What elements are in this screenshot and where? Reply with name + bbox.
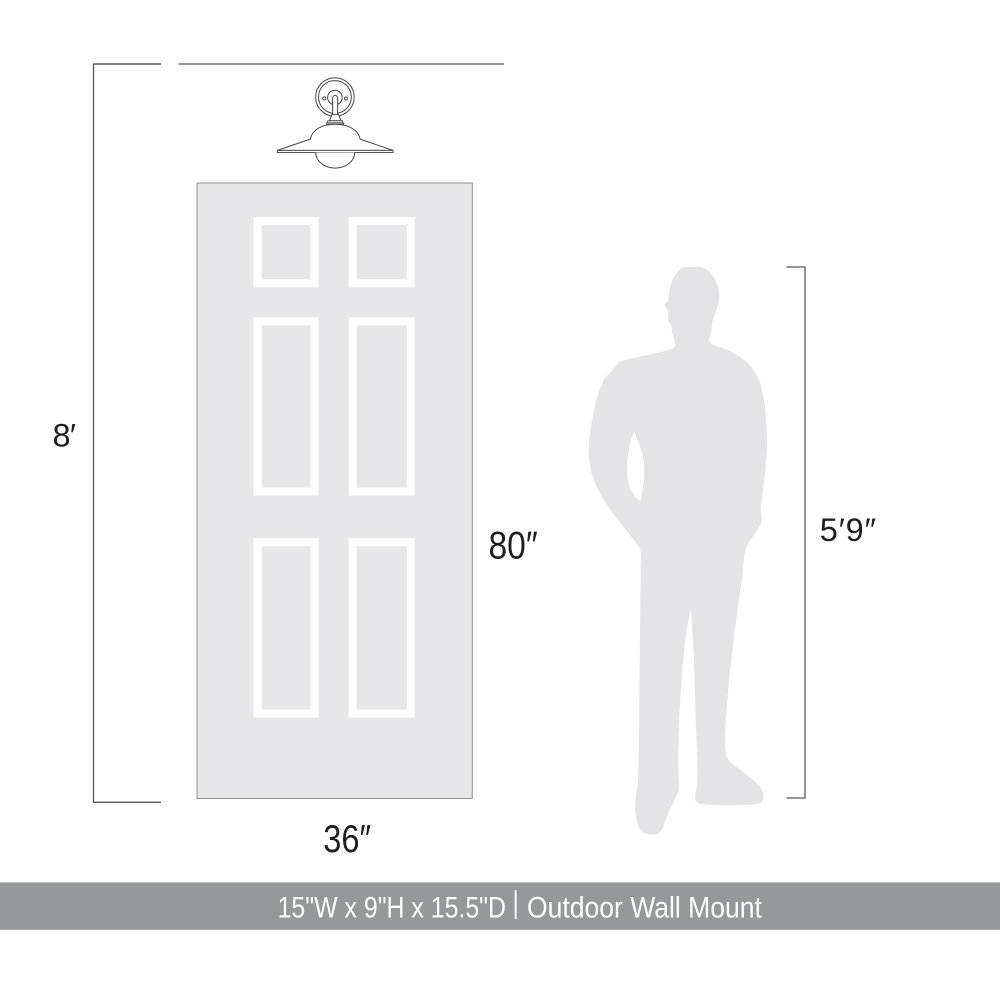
svg-text:80″: 80″: [489, 525, 538, 568]
svg-text:Outdoor Wall Mount: Outdoor Wall Mount: [527, 892, 762, 925]
svg-text:15"W x 9"H x 15.5"D: 15"W x 9"H x 15.5"D: [278, 892, 506, 925]
svg-text:36″: 36″: [323, 818, 371, 861]
svg-text:5′9″: 5′9″: [820, 512, 876, 548]
svg-text:8′: 8′: [53, 418, 77, 454]
